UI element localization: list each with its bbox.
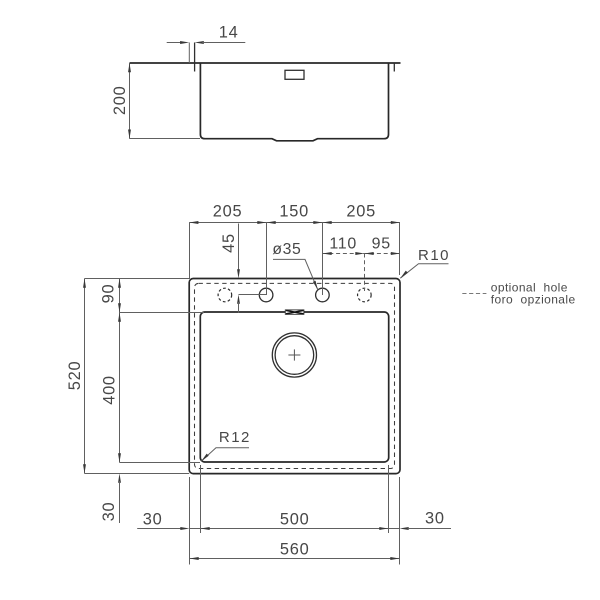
svg-text:400: 400 [101,375,119,405]
svg-text:560: 560 [280,540,310,558]
svg-text:520: 520 [66,361,84,391]
svg-text:foro opzionale: foro opzionale [491,293,576,307]
svg-text:205: 205 [346,202,376,220]
svg-text:14: 14 [219,23,239,41]
svg-text:90: 90 [99,284,117,304]
svg-text:30: 30 [100,502,118,522]
svg-text:95: 95 [372,236,391,253]
svg-text:500: 500 [280,510,310,528]
svg-text:110: 110 [329,236,357,253]
svg-text:45: 45 [220,233,238,253]
svg-text:205: 205 [213,202,243,220]
svg-text:30: 30 [143,510,163,528]
svg-text:R12: R12 [219,429,251,446]
svg-text:ø35: ø35 [272,241,301,258]
svg-text:30: 30 [425,509,445,527]
svg-text:150: 150 [279,202,309,220]
svg-text:200: 200 [111,85,129,115]
svg-text:R10: R10 [418,247,450,264]
